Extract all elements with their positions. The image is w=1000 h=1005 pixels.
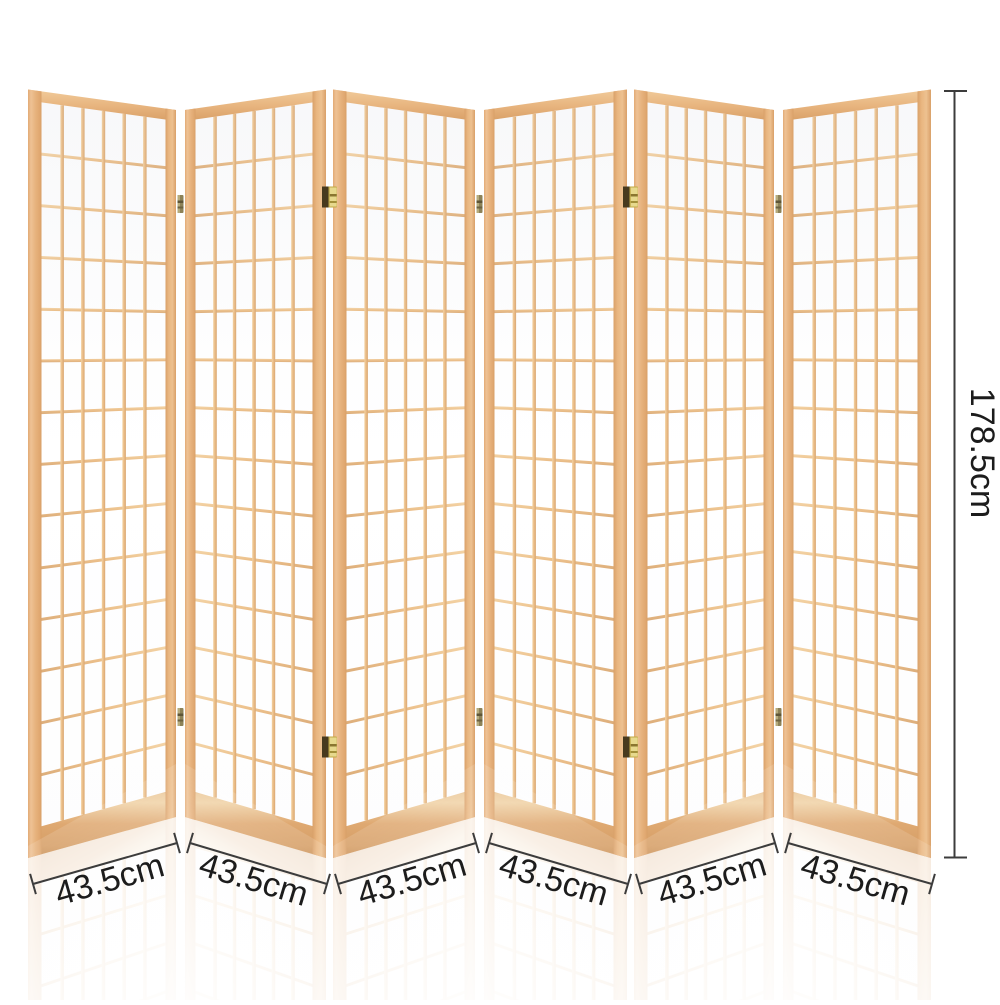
- svg-text:178.5cm: 178.5cm: [963, 388, 1000, 518]
